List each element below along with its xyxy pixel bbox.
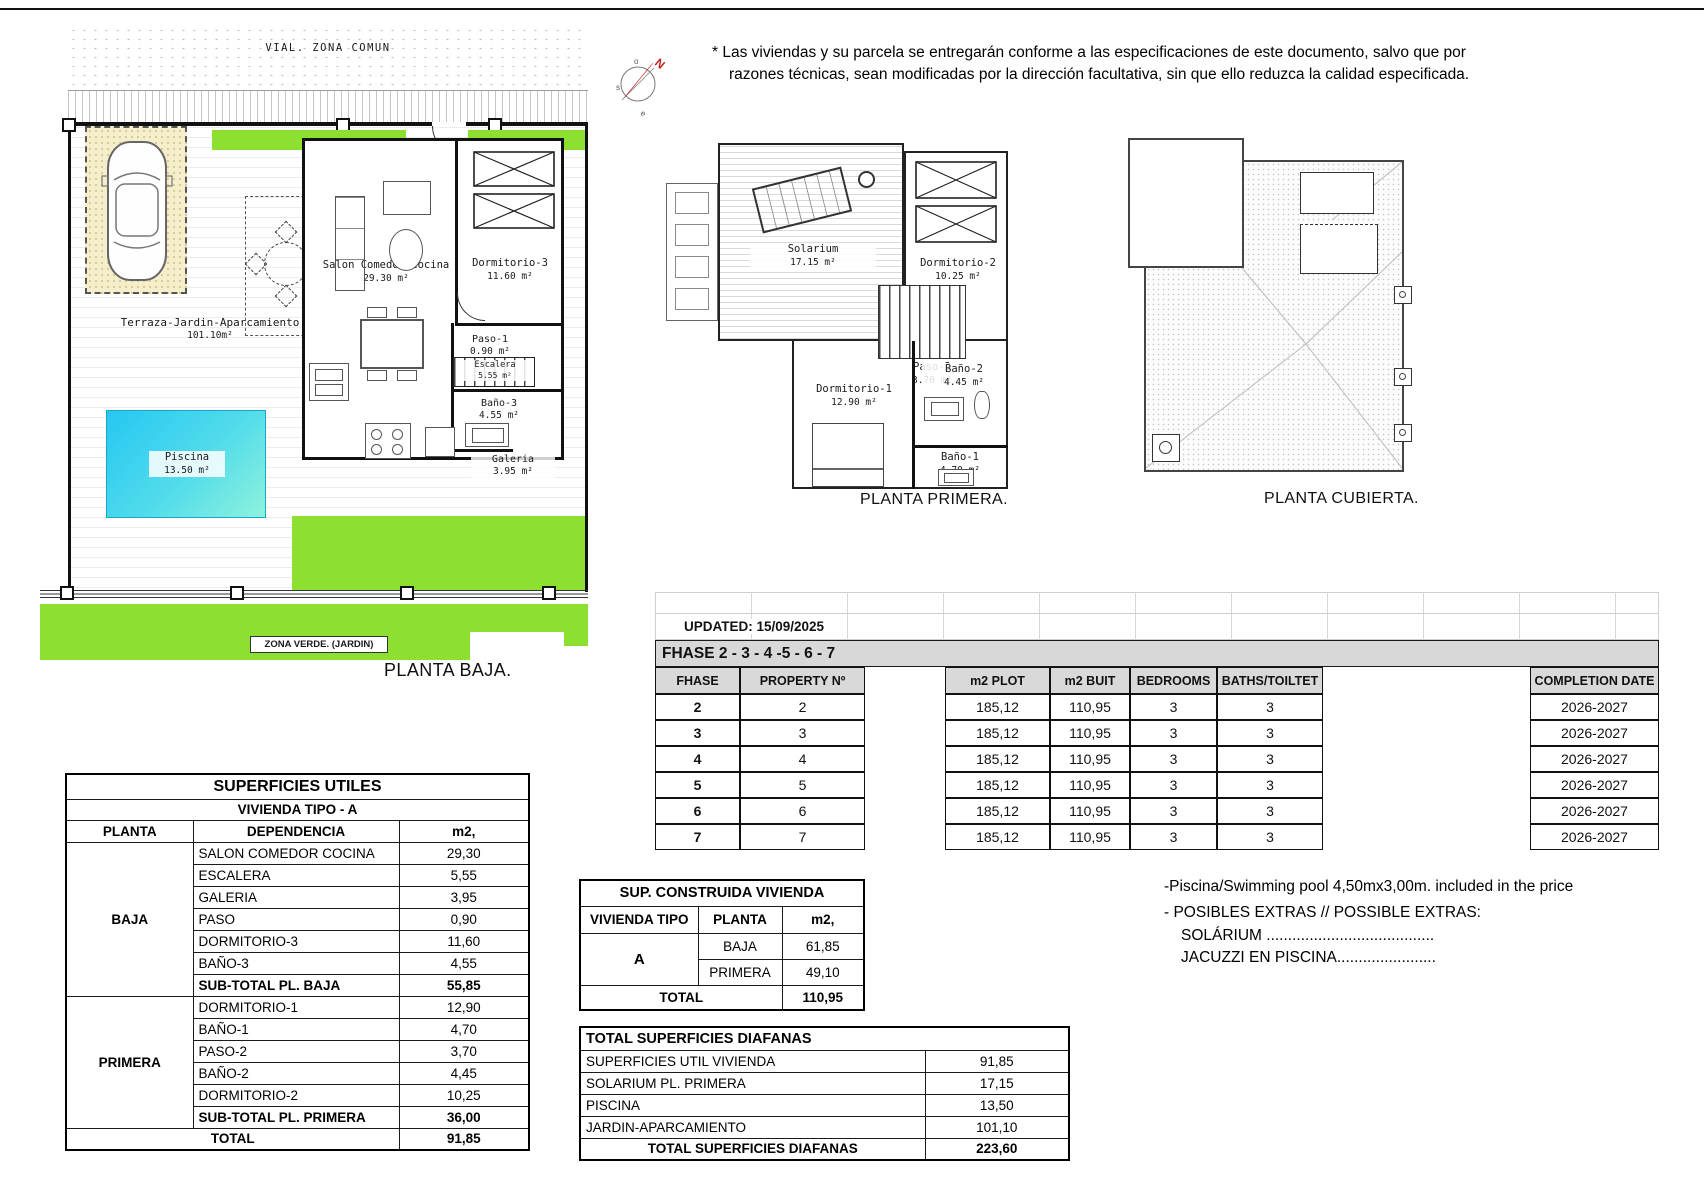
room-name: Baño-2 <box>945 363 983 375</box>
cell-baths: 3 <box>1217 824 1323 850</box>
plot-wall-left <box>68 122 71 592</box>
note-jacuzzi-extra: JACUZZI EN PISCINA......................… <box>1181 949 1436 967</box>
disclaimer-line1: * Las viviendas y su parcela se entregar… <box>712 42 1512 64</box>
room-name: Baño-1 <box>941 451 979 463</box>
cell-plot: 185,12 <box>945 824 1050 850</box>
dependencia-cell: BAÑO-1 <box>193 1018 399 1040</box>
table-title: SUPERFICIES UTILES <box>66 774 529 799</box>
cell-property: 6 <box>740 798 865 824</box>
value-cell: 13,50 <box>925 1094 1069 1116</box>
m2-cell: 29,30 <box>399 842 529 864</box>
cell-fhase: 6 <box>655 798 740 824</box>
roof-anchor <box>1394 368 1412 386</box>
dormitorio2-label: Dormitorio-2 10.25 m² <box>900 257 1016 283</box>
col-gap <box>1323 746 1530 772</box>
zona-verde-label: ZONA VERDE. (JARDIN) <box>250 636 388 653</box>
tipo-cell: A <box>580 933 698 985</box>
col-header-baths: BATHS/TOILTET <box>1217 667 1323 694</box>
sofa-icon <box>335 196 365 291</box>
garden-green <box>292 516 585 590</box>
m2-cell: 12,90 <box>399 996 529 1018</box>
subtotal-value: 36,00 <box>399 1106 529 1128</box>
wardrobe-icon <box>473 193 555 229</box>
plot-wall-right <box>585 122 588 592</box>
cell-property: 3 <box>740 720 865 746</box>
sink-icon <box>465 423 509 447</box>
cell-fhase: 4 <box>655 746 740 772</box>
m2-cell: 49,10 <box>782 959 864 985</box>
pool-name: Piscina <box>165 451 209 463</box>
cell-bedrooms: 3 <box>1130 772 1217 798</box>
wardrobe-icon <box>915 161 997 199</box>
cell-completion: 2026-2027 <box>1530 720 1659 746</box>
col-gap <box>1323 694 1530 720</box>
updated-label: UPDATED: 15/09/2025 <box>656 619 824 634</box>
value-cell: 91,85 <box>925 1050 1069 1072</box>
col-header-dependencia: DEPENDENCIA <box>193 820 399 842</box>
cell-built: 110,95 <box>1050 746 1130 772</box>
table-row: PISCINA13,50 <box>580 1094 1069 1116</box>
room-name: Dormitorio-1 <box>816 383 892 395</box>
cell-completion: 2026-2027 <box>1530 746 1659 772</box>
cell-plot: 185,12 <box>945 772 1050 798</box>
cell-completion: 2026-2027 <box>1530 694 1659 720</box>
label-cell: JARDIN-APARCAMIENTO <box>580 1116 925 1138</box>
value-cell: 17,15 <box>925 1072 1069 1094</box>
subtotal-value: 55,85 <box>399 974 529 996</box>
cell-built: 110,95 <box>1050 798 1130 824</box>
planta-baja-plan: VIAL. ZONA COMUN Terraza-Jardin-Apar <box>40 26 625 691</box>
cell-completion: 2026-2027 <box>1530 824 1659 850</box>
wall <box>912 445 1008 448</box>
total-row: TOTAL 110,95 <box>580 985 864 1010</box>
fence-post <box>542 586 556 600</box>
cell-completion: 2026-2027 <box>1530 798 1659 824</box>
col-gap <box>865 772 945 798</box>
m2-cell: 0,90 <box>399 908 529 930</box>
dormitorio1-label: Dormitorio-1 12.90 m² <box>798 383 910 409</box>
room-name: Baño-3 <box>481 398 517 409</box>
wardrobe-icon <box>473 151 555 187</box>
room-area: 4.45 m² <box>922 377 1006 389</box>
cell-fhase: 7 <box>655 824 740 850</box>
house-outline: Dormitorio-3 11.60 m² Paso-1 0.90 m² Esc… <box>302 138 564 460</box>
note-solarium-extra: SOLÁRIUM ...............................… <box>1181 927 1434 945</box>
m2-cell: 3,70 <box>399 1040 529 1062</box>
cell-property: 2 <box>740 694 865 720</box>
cell-built: 110,95 <box>1050 824 1130 850</box>
dependencia-cell: BAÑO-3 <box>193 952 399 974</box>
planta-cell: PRIMERA <box>698 959 782 985</box>
dependencia-cell: SALON COMEDOR COCINA <box>193 842 399 864</box>
sink-icon <box>938 469 974 486</box>
total-row: TOTAL91,85 <box>66 1128 529 1150</box>
room-area: 4.55 m² <box>457 410 541 422</box>
plan-sheet: VIAL. ZONA COMUN Terraza-Jardin-Apar <box>0 0 1704 1204</box>
planta-primera-group-label: PRIMERA <box>66 996 193 1128</box>
fence-post <box>400 586 414 600</box>
roof-void <box>1128 138 1244 268</box>
wall <box>912 341 915 489</box>
total-value: 223,60 <box>925 1138 1069 1160</box>
cell-built: 110,95 <box>1050 720 1130 746</box>
fridge-icon <box>425 427 455 457</box>
cell-fhase: 5 <box>655 772 740 798</box>
pool-label: Piscina 13.50 m² <box>149 451 225 477</box>
room-area: 5.55 m² <box>464 371 526 381</box>
dependencia-cell: DORMITORIO-2 <box>193 1084 399 1106</box>
wardrobe-icon <box>915 205 997 243</box>
wall-post <box>62 118 76 132</box>
m2-cell: 11,60 <box>399 930 529 952</box>
spreadsheet-empty-row <box>655 592 1659 614</box>
table-title: SUP. CONSTRUIDA VIVIENDA <box>580 880 864 906</box>
sheet-border-line <box>0 8 1704 10</box>
total-label: TOTAL SUPERFICIES DIAFANAS <box>580 1138 925 1160</box>
m2-cell: 3,95 <box>399 886 529 908</box>
chair-icon <box>367 307 387 318</box>
table-row: SOLARIUM PL. PRIMERA17,15 <box>580 1072 1069 1094</box>
subtotal-label: SUB-TOTAL PL. BAJA <box>193 974 399 996</box>
total-row: TOTAL SUPERFICIES DIAFANAS223,60 <box>580 1138 1069 1160</box>
col-gap <box>1323 667 1530 694</box>
disclaimer-line2: razones técnicas, sean modificadas por l… <box>712 64 1512 86</box>
wall <box>451 449 513 452</box>
green-band <box>564 632 588 646</box>
col-gap <box>865 720 945 746</box>
dependencia-cell: PASO-2 <box>193 1040 399 1062</box>
escalera-stairs: Escalera 5.55 m² <box>453 357 535 387</box>
room-area: 17.15 m² <box>750 257 876 269</box>
dining-table-icon <box>360 319 424 369</box>
dependencia-cell: DORMITORIO-3 <box>193 930 399 952</box>
col-header-built: m2 BUIT <box>1050 667 1130 694</box>
chair-icon <box>397 370 417 381</box>
room-name: Galeria <box>492 454 534 465</box>
dormitorio3-label: Dormitorio-3 11.60 m² <box>455 257 565 283</box>
pool-area: 13.50 m² <box>149 465 225 477</box>
sun-lounger-icon <box>752 167 852 234</box>
cell-property: 7 <box>740 824 865 850</box>
ball-icon <box>858 171 875 188</box>
updated-row: UPDATED: 15/09/2025 <box>655 614 1659 640</box>
fhase-row: 7 7 185,12 110,95 3 3 2026-2027 <box>655 824 1659 850</box>
car-icon <box>100 138 174 284</box>
cell-fhase: 3 <box>655 720 740 746</box>
col-header-planta: PLANTA <box>698 906 782 933</box>
fhase-row: 5 5 185,12 110,95 3 3 2026-2027 <box>655 772 1659 798</box>
fence-line <box>40 590 588 598</box>
col-header-m2: m2, <box>782 906 864 933</box>
compass-north: N <box>652 56 668 72</box>
col-gap <box>1323 798 1530 824</box>
green-band <box>40 604 588 632</box>
col-gap <box>865 746 945 772</box>
room-name: Escalera <box>475 360 516 370</box>
cell-plot: 185,12 <box>945 694 1050 720</box>
col-gap <box>1323 772 1530 798</box>
stairs <box>878 285 966 359</box>
total-label: TOTAL <box>580 985 782 1010</box>
side-table-icon <box>389 229 423 271</box>
room-name: Dormitorio-3 <box>472 257 548 269</box>
roof-drain <box>1152 434 1180 462</box>
room-area: 12.90 m² <box>798 397 910 409</box>
fhase-row: 3 3 185,12 110,95 3 3 2026-2027 <box>655 720 1659 746</box>
cell-plot: 185,12 <box>945 746 1050 772</box>
col-header-plot: m2 PLOT <box>945 667 1050 694</box>
m2-cell: 10,25 <box>399 1084 529 1106</box>
room-area: 10.25 m² <box>900 271 1016 283</box>
col-header-fhase: FHASE <box>655 667 740 694</box>
fhase-title-band: FHASE 2 - 3 - 4 -5 - 6 - 7 <box>655 640 1659 667</box>
planta-baja-caption: PLANTA BAJA. <box>384 660 584 681</box>
solarium-label: Solarium 17.15 m² <box>750 243 876 269</box>
planta-cubierta-caption: PLANTA CUBIERTA. <box>1264 490 1444 508</box>
cell-baths: 3 <box>1217 772 1323 798</box>
note-pool-included: -Piscina/Swimming pool 4,50mx3,00m. incl… <box>1164 878 1573 896</box>
dependencia-cell: PASO <box>193 908 399 930</box>
roof-anchor <box>1394 286 1412 304</box>
sink-icon <box>924 397 964 421</box>
door-arc <box>457 293 485 321</box>
parking-area <box>85 126 187 294</box>
subtotal-label: SUB-TOTAL PL. PRIMERA <box>193 1106 399 1128</box>
planta-baja-group-label: BAJA <box>66 842 193 996</box>
galeria-label: Galeria 3.95 m² <box>471 453 555 478</box>
fence-post <box>60 586 74 600</box>
cell-plot: 185,12 <box>945 798 1050 824</box>
fence-post <box>230 586 244 600</box>
room-name: Paso-1 <box>472 334 508 345</box>
cell-bedrooms: 3 <box>1130 746 1217 772</box>
table-row: BAJA SALON COMEDOR COCINA 29,30 <box>66 842 529 864</box>
street-zone <box>68 26 588 90</box>
planta-cubierta-plan: PLANTA CUBIERTA. <box>1122 138 1422 516</box>
room-area: 11.60 m² <box>455 271 565 283</box>
planta-primera-caption: PLANTA PRIMERA. <box>860 491 1030 509</box>
fhase-row: 2 2 185,12 110,95 3 3 2026-2027 <box>655 694 1659 720</box>
compass-west: o <box>634 57 639 66</box>
planta-primera-plan: Solarium 17.15 m² Dormitorio-2 10.25 m² … <box>660 135 1012 517</box>
bano2-label: Baño-2 4.45 m² <box>922 363 1006 389</box>
diafanas-table: TOTAL SUPERFICIES DIAFANAS SUPERFICIES U… <box>579 1026 1070 1161</box>
cell-built: 110,95 <box>1050 772 1130 798</box>
roof-anchor <box>1394 424 1412 442</box>
col-header-tipo: VIVIENDA TIPO <box>580 906 698 933</box>
wall <box>455 323 561 326</box>
bed-icon <box>812 423 884 487</box>
cell-completion: 2026-2027 <box>1530 772 1659 798</box>
escalera-label: Escalera 5.55 m² <box>464 360 526 381</box>
fhase-table: UPDATED: 15/09/2025 FHASE 2 - 3 - 4 -5 -… <box>655 592 1659 850</box>
cell-fhase: 2 <box>655 694 740 720</box>
cell-plot: 185,12 <box>945 720 1050 746</box>
balcony <box>666 183 718 321</box>
total-value: 110,95 <box>782 985 864 1010</box>
cell-built: 110,95 <box>1050 694 1130 720</box>
m2-cell: 4,70 <box>399 1018 529 1040</box>
dependencia-cell: GALERIA <box>193 886 399 908</box>
label-cell: SUPERFICIES UTIL VIVIENDA <box>580 1050 925 1072</box>
wall <box>451 389 561 392</box>
table-row: PRIMERA DORMITORIO-1 12,90 <box>66 996 529 1018</box>
planta-cell: BAJA <box>698 933 782 959</box>
chair-icon <box>367 370 387 381</box>
col-gap <box>865 694 945 720</box>
col-gap <box>1323 720 1530 746</box>
cell-property: 4 <box>740 746 865 772</box>
skylight <box>1300 172 1374 214</box>
cell-baths: 3 <box>1217 746 1323 772</box>
compass-icon: N o s e <box>606 42 670 120</box>
bano3-label: Baño-3 4.55 m² <box>457 397 541 422</box>
col-gap <box>865 798 945 824</box>
cell-ba: 3 <box>1217 720 1323 746</box>
table-row: A BAJA 61,85 <box>580 933 864 959</box>
cell-bedrooms: 3 <box>1130 720 1217 746</box>
room-name: Dormitorio-2 <box>920 257 996 269</box>
superficies-utiles-table: SUPERFICIES UTILES VIVIENDA TIPO - A PLA… <box>65 773 530 1151</box>
cell-bedrooms: 3 <box>1130 694 1217 720</box>
disclaimer: * Las viviendas y su parcela se entregar… <box>712 42 1512 86</box>
table-row: JARDIN-APARCAMIENTO101,10 <box>580 1116 1069 1138</box>
sup-construida-table: SUP. CONSTRUIDA VIVIENDA VIVIENDA TIPO P… <box>579 879 865 1011</box>
dependencia-cell: DORMITORIO-1 <box>193 996 399 1018</box>
col-header-bedrooms: BEDROOMS <box>1130 667 1217 694</box>
pool: Piscina 13.50 m² <box>106 410 266 518</box>
col-gap <box>1323 824 1530 850</box>
chair-icon <box>397 307 417 318</box>
table-subtitle: VIVIENDA TIPO - A <box>66 799 529 820</box>
table-title: TOTAL SUPERFICIES DIAFANAS <box>580 1027 1069 1050</box>
kitchen-sink-icon <box>309 363 349 401</box>
paso1-label: Paso-1 0.90 m² <box>453 333 527 358</box>
cell-property: 5 <box>740 772 865 798</box>
label-cell: PISCINA <box>580 1094 925 1116</box>
col-gap <box>865 667 945 694</box>
room-name: Solarium <box>788 243 839 255</box>
col-header-completion: COMPLETION DATE <box>1530 667 1659 694</box>
m2-cell: 4,45 <box>399 1062 529 1084</box>
sidewalk <box>68 90 588 122</box>
compass-east: e <box>639 109 649 119</box>
col-header-m2: m2, <box>399 820 529 842</box>
fhase-row: 6 6 185,12 110,95 3 3 2026-2027 <box>655 798 1659 824</box>
total-label: TOTAL <box>66 1128 399 1150</box>
cell-baths: 3 <box>1217 694 1323 720</box>
solarium: Solarium 17.15 m² <box>718 143 904 341</box>
room-area: 3.95 m² <box>471 466 555 478</box>
compass-south: s <box>616 83 620 92</box>
dependencia-cell: ESCALERA <box>193 864 399 886</box>
label-cell: SOLARIUM PL. PRIMERA <box>580 1072 925 1094</box>
cell-bedrooms: 3 <box>1130 798 1217 824</box>
stove-icon <box>365 423 411 459</box>
total-value: 91,85 <box>399 1128 529 1150</box>
table-row: SUPERFICIES UTIL VIVIENDA91,85 <box>580 1050 1069 1072</box>
col-gap <box>865 824 945 850</box>
compass: N o s e <box>606 42 670 120</box>
m2-cell: 61,85 <box>782 933 864 959</box>
fhase-row: 4 4 185,12 110,95 3 3 2026-2027 <box>655 746 1659 772</box>
street-label: VIAL. ZONA COMUN <box>68 42 588 54</box>
toilet-icon <box>974 391 990 419</box>
armchair-icon <box>383 181 431 215</box>
m2-cell: 5,55 <box>399 864 529 886</box>
dependencia-cell: BAÑO-2 <box>193 1062 399 1084</box>
note-possible-extras: - POSIBLES EXTRAS // POSSIBLE EXTRAS: <box>1164 904 1481 922</box>
m2-cell: 4,55 <box>399 952 529 974</box>
col-header-property: PROPERTY Nº <box>740 667 865 694</box>
value-cell: 101,10 <box>925 1116 1069 1138</box>
cell-bedrooms: 3 <box>1130 824 1217 850</box>
cell-baths: 3 <box>1217 798 1323 824</box>
skylight <box>1300 224 1378 274</box>
fhase-header-row: FHASE PROPERTY Nº m2 PLOT m2 BUIT BEDROO… <box>655 667 1659 694</box>
col-header-planta: PLANTA <box>66 820 193 842</box>
